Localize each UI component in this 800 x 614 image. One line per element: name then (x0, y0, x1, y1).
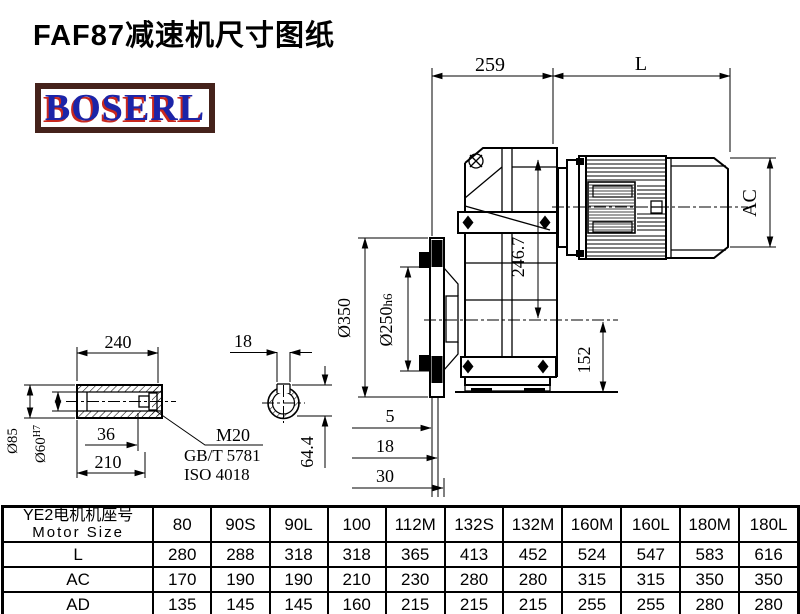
motor-side-view (552, 156, 748, 259)
dim-5-label: 5 (386, 406, 395, 426)
dim-85-label: Ø85 (5, 428, 21, 454)
column-header-132M: 132M (503, 507, 562, 543)
cell-AD-180M: 280 (680, 592, 739, 614)
drawing-page: FAF87减速机尺寸图纸 BOSERL 259 L AC (0, 0, 800, 614)
cell-AC-132S: 280 (445, 567, 504, 592)
hollow-shaft-detail: 240 36 210 Ø85 Ø60H7 M20 GB/T 5781 ISO (5, 332, 263, 484)
dims-5-18-30: 5 18 30 (352, 397, 444, 497)
cell-L-132S: 413 (445, 542, 504, 567)
cell-AC-160M: 315 (562, 567, 621, 592)
cell-AD-112M: 215 (386, 592, 445, 614)
dim-18-keyway-label: 18 (234, 331, 252, 351)
motor-fins (586, 160, 666, 256)
dim-350-label: Ø350 (334, 298, 354, 338)
column-header-132S: 132S (445, 507, 504, 543)
column-header-180M: 180M (680, 507, 739, 543)
motor-size-header-en: Motor Size (4, 525, 152, 542)
cell-AC-160L: 315 (621, 567, 680, 592)
fan-cover (666, 158, 728, 258)
cell-AD-160L: 255 (621, 592, 680, 614)
dim-250h6-label: Ø250h6 (376, 293, 396, 347)
cell-L-132M: 452 (503, 542, 562, 567)
eye-bolt-icon (469, 154, 483, 168)
cell-L-90S: 288 (211, 542, 269, 567)
cell-AD-90L: 145 (270, 592, 328, 614)
cell-AC-112M: 230 (386, 567, 445, 592)
dim-259-label: 259 (475, 54, 505, 76)
cell-L-90L: 318 (270, 542, 328, 567)
dim-36-label: 36 (97, 424, 115, 444)
cell-L-180L: 616 (739, 542, 798, 567)
cell-AD-132S: 215 (445, 592, 504, 614)
cell-AD-90S: 145 (211, 592, 269, 614)
cell-L-80: 280 (153, 542, 211, 567)
cell-AD-80: 135 (153, 592, 211, 614)
dim-64-4-label: 64.4 (297, 436, 317, 468)
note-gbt5781: GB/T 5781 (184, 446, 261, 465)
technical-drawing: 259 L AC (0, 0, 800, 505)
cell-AD-180L: 280 (739, 592, 798, 614)
column-header-100: 100 (328, 507, 386, 543)
dim-240-label: 240 (105, 332, 132, 352)
dim-152-label: 152 (574, 347, 594, 374)
note-m20: M20 (216, 425, 250, 445)
row-label-AD: AD (3, 592, 154, 614)
motor-size-table: YE2电机机座号Motor Size8090S90L100112M132S132… (1, 505, 800, 614)
column-header-90S: 90S (211, 507, 269, 543)
cell-AD-100: 160 (328, 592, 386, 614)
cell-AC-90L: 190 (270, 567, 328, 592)
cell-AC-180M: 350 (680, 567, 739, 592)
cell-AC-90S: 190 (211, 567, 269, 592)
cell-L-160M: 524 (562, 542, 621, 567)
motor-size-header-cn: YE2电机机座号 (4, 508, 152, 525)
dim-152: 152 (574, 322, 603, 392)
dim-246-7-label: 246.7 (508, 237, 528, 278)
output-flange (419, 238, 458, 397)
column-header-90L: 90L (270, 507, 328, 543)
cell-AC-180L: 350 (739, 567, 798, 592)
boserl-logo-text: BOSERL (45, 89, 205, 127)
column-header-112M: 112M (386, 507, 445, 543)
motor-size-header-cell: YE2电机机座号Motor Size (3, 507, 154, 543)
note-iso4018: ISO 4018 (184, 465, 250, 484)
dim-60h7-label: Ø60H7 (32, 425, 49, 463)
cell-L-100: 318 (328, 542, 386, 567)
row-label-AC: AC (3, 567, 154, 592)
cell-L-112M: 365 (386, 542, 445, 567)
cell-L-180M: 583 (680, 542, 739, 567)
boserl-logo: BOSERL (35, 83, 215, 133)
ac-dimension: AC (730, 158, 776, 247)
cell-AD-132M: 215 (503, 592, 562, 614)
dim-L-label: L (635, 53, 647, 75)
column-header-180L: 180L (739, 507, 798, 543)
cell-AC-100: 210 (328, 567, 386, 592)
row-label-L: L (3, 542, 154, 567)
column-header-160M: 160M (562, 507, 621, 543)
dim-30-label: 30 (376, 466, 394, 486)
cell-AC-132M: 280 (503, 567, 562, 592)
column-header-160L: 160L (621, 507, 680, 543)
dim-AC-label: AC (739, 189, 761, 217)
page-title: FAF87减速机尺寸图纸 (33, 12, 335, 54)
cell-L-160L: 547 (621, 542, 680, 567)
dim-18-label: 18 (376, 436, 394, 456)
cell-AC-80: 170 (153, 567, 211, 592)
column-header-80: 80 (153, 507, 211, 543)
top-dimensions: 259 L (432, 53, 730, 236)
cell-AD-160M: 255 (562, 592, 621, 614)
dim-210-label: 210 (95, 452, 122, 472)
